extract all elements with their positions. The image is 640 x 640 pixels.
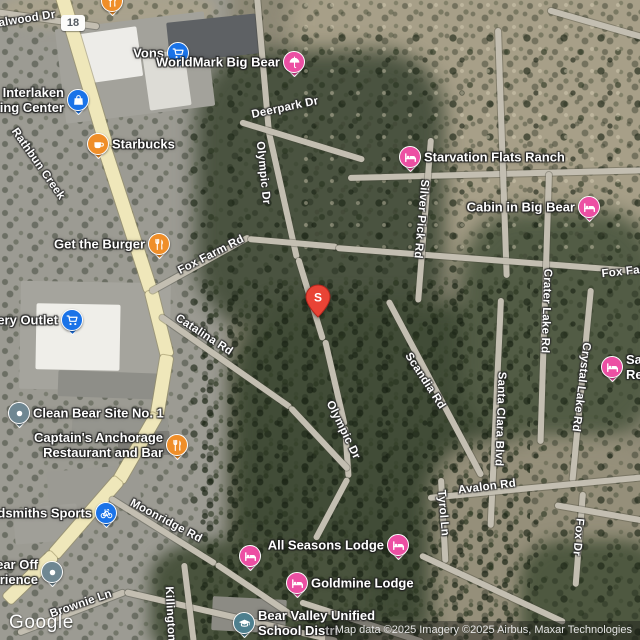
bed-glyph — [606, 361, 619, 374]
umbrella-glyph — [288, 56, 301, 69]
poi-layer: VonsInterlakening CenterWorldMark Big Be… — [0, 0, 640, 640]
bed-icon[interactable] — [578, 196, 600, 218]
poi-label-line: Interlaken — [0, 85, 64, 100]
poi-label-line: Clean Bear Site No. 1 — [33, 406, 164, 421]
fork-knife-glyph — [106, 0, 119, 8]
poi-label-starbucks[interactable]: Starbucks — [112, 137, 175, 152]
poi-label-captains-anchorage[interactable]: Captain's AnchorageRestaurant and Bar — [34, 430, 163, 460]
attribution-text: Map data ©2025 Imagery ©2025 Airbus, Max… — [335, 624, 632, 636]
poi-label-line: All Seasons Lodge — [268, 538, 384, 553]
poi-label-line: Goldmine Lodge — [311, 576, 414, 591]
poi-label-clean-bear-site-no-1[interactable]: Clean Bear Site No. 1 — [33, 406, 164, 421]
dot-glyph — [13, 407, 26, 420]
poi-label-line: rience — [0, 572, 38, 587]
poi-label-line: ear Off — [0, 557, 38, 572]
poi-label-bear-off-experience[interactable]: ear Offrience — [0, 557, 38, 587]
dot-icon[interactable] — [8, 402, 30, 424]
bed-icon[interactable] — [601, 356, 623, 378]
poi-label-grocery-outlet[interactable]: ery Outlet — [0, 313, 58, 328]
selected-place-pin[interactable]: S — [305, 284, 331, 318]
poi-label-cabin-in-big-bear[interactable]: Cabin in Big Bear — [467, 200, 575, 215]
poi-label-resort-east-edge[interactable]: SaRe — [626, 352, 640, 382]
poi-label-line: dsmiths Sports — [0, 506, 92, 521]
cup-glyph — [92, 138, 105, 151]
bed-glyph — [404, 151, 417, 164]
fork-knife-icon[interactable] — [166, 434, 188, 456]
bed-icon[interactable] — [399, 146, 421, 168]
poi-label-worldmark-big-bear[interactable]: WorldMark Big Bear — [156, 55, 280, 70]
poi-label-line: Starvation Flats Ranch — [424, 150, 565, 165]
poi-label-goldmine-lodge[interactable]: Goldmine Lodge — [311, 576, 414, 591]
bed-glyph — [291, 577, 304, 590]
poi-label-line: Starbucks — [112, 137, 175, 152]
poi-label-line: Captain's Anchorage — [34, 430, 163, 445]
fork-knife-icon[interactable] — [101, 0, 123, 12]
bag-icon[interactable] — [67, 89, 89, 111]
fork-knife-icon[interactable] — [148, 233, 170, 255]
poi-label-line: WorldMark Big Bear — [156, 55, 280, 70]
poi-label-interlaken-shopping-center[interactable]: Interlakening Center — [0, 85, 64, 115]
bed-icon[interactable] — [286, 572, 308, 594]
poi-label-line: Cabin in Big Bear — [467, 200, 575, 215]
poi-label-all-seasons-lodge[interactable]: All Seasons Lodge — [268, 538, 384, 553]
bicycle-glyph — [100, 507, 113, 520]
pin-letter: S — [314, 291, 322, 305]
dot-glyph — [46, 566, 59, 579]
poi-label-line: Restaurant and Bar — [34, 445, 163, 460]
poi-label-line: Sa — [626, 352, 640, 367]
poi-label-line: ing Center — [0, 100, 64, 115]
bed-glyph — [244, 550, 257, 563]
fork-knife-glyph — [171, 439, 184, 452]
grad-cap-icon[interactable] — [233, 612, 255, 634]
bag-glyph — [72, 94, 85, 107]
grad-cap-glyph — [238, 617, 251, 630]
poi-label-get-the-burger[interactable]: Get the Burger — [54, 237, 145, 252]
google-logo[interactable]: Google — [9, 612, 74, 634]
cup-icon[interactable] — [87, 133, 109, 155]
bicycle-icon[interactable] — [95, 502, 117, 524]
poi-label-goldsmiths-sports[interactable]: dsmiths Sports — [0, 506, 92, 521]
satellite-map-canvas[interactable]: alwood DrDeerpark DrOlympic DrRathbun Cr… — [0, 0, 640, 640]
cart-glyph — [66, 314, 79, 327]
poi-label-line: ery Outlet — [0, 313, 58, 328]
bed-glyph — [583, 201, 596, 214]
bed-icon[interactable] — [387, 534, 409, 556]
attribution-bar: Map data ©2025 Imagery ©2025 Airbus, Max… — [325, 621, 640, 640]
dot-icon[interactable] — [41, 561, 63, 583]
bed-icon[interactable] — [239, 545, 261, 567]
umbrella-icon[interactable] — [283, 51, 305, 73]
bed-glyph — [392, 539, 405, 552]
poi-label-starvation-flats-ranch[interactable]: Starvation Flats Ranch — [424, 150, 565, 165]
cart-icon[interactable] — [61, 309, 83, 331]
poi-label-line: Re — [626, 367, 640, 382]
poi-label-line: Get the Burger — [54, 237, 145, 252]
fork-knife-glyph — [153, 238, 166, 251]
